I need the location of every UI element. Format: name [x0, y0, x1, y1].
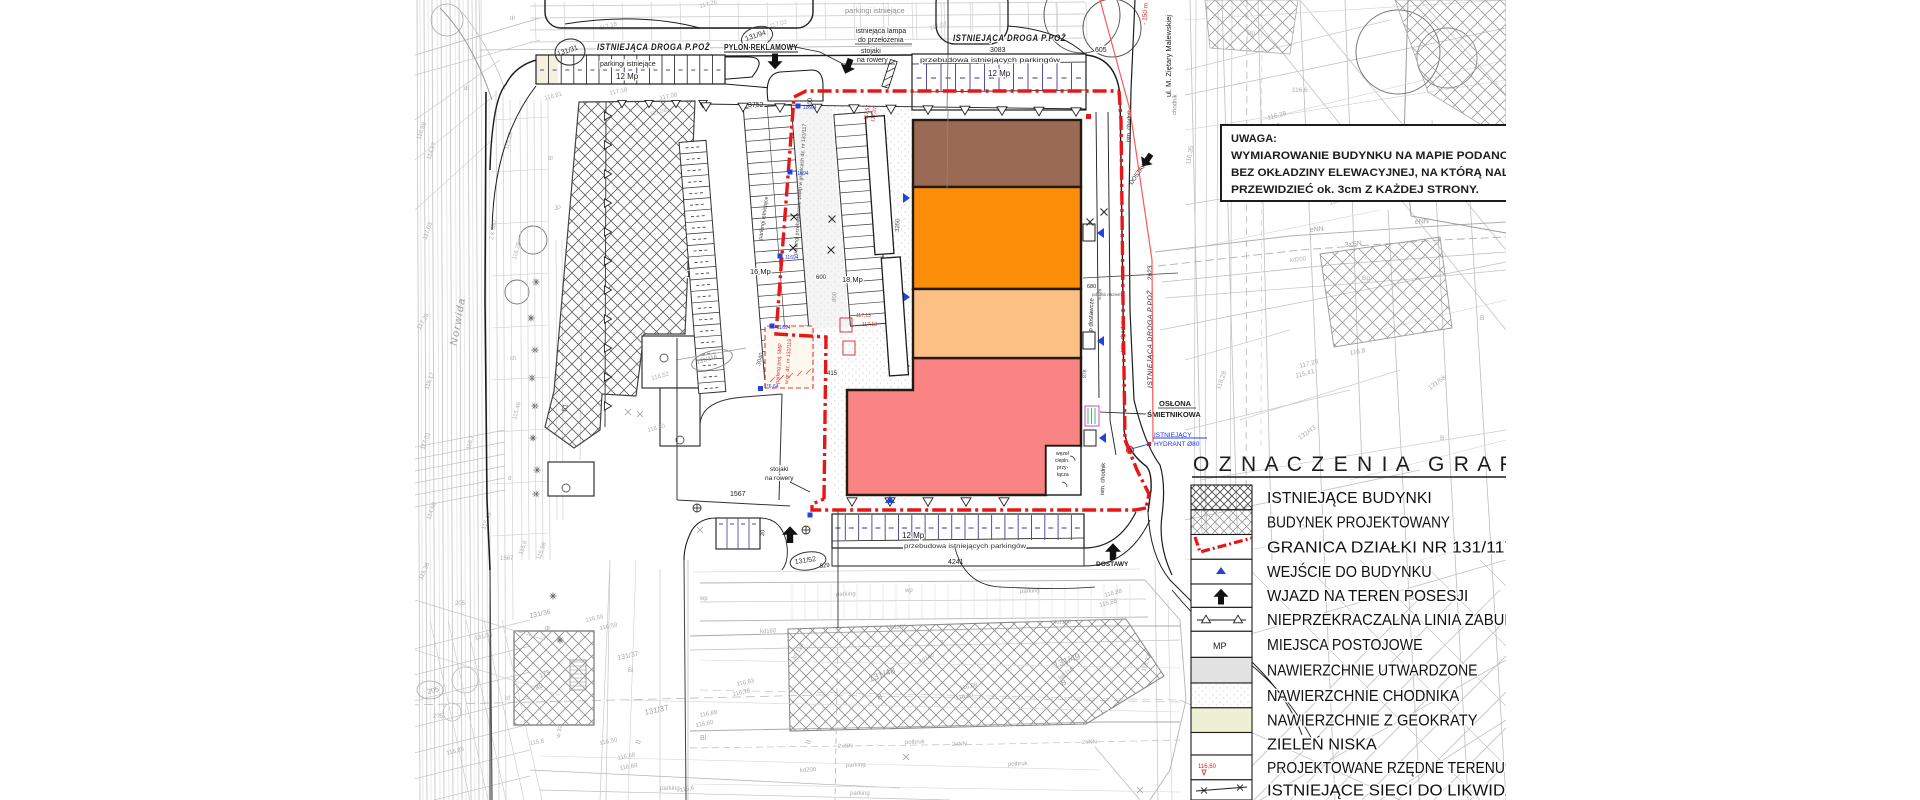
svg-text:NAWIERZCHNIE Z GEOKRATY: NAWIERZCHNIE Z GEOKRATY [1267, 713, 1478, 730]
svg-text:20: 20 [760, 530, 767, 537]
svg-text:PYLON REKLAMOWY: PYLON REKLAMOWY [724, 43, 798, 52]
svg-text:116,6: 116,6 [1292, 87, 1308, 94]
svg-text:parking: parking [660, 786, 680, 792]
svg-text:NAWIERZCHNIE CHODNIKA: NAWIERZCHNIE CHODNIKA [1267, 688, 1460, 705]
svg-text:5726: 5726 [1097, 289, 1103, 301]
svg-text:18 Mp: 18 Mp [842, 275, 863, 284]
svg-text:parkingi istniejące: parkingi istniejące [600, 61, 656, 68]
svg-text:415: 415 [827, 371, 838, 377]
svg-text:HYDRANT Ø80: HYDRANT Ø80 [1154, 441, 1200, 448]
svg-text:12 Mp: 12 Mp [988, 69, 1011, 78]
svg-text:kd160: kd160 [760, 628, 777, 635]
svg-text:bf: bf [505, 696, 510, 702]
svg-text:ZIELEŃ NISKA: ZIELEŃ NISKA [1267, 736, 1377, 753]
svg-text:800: 800 [832, 291, 838, 302]
svg-text:OSŁONA: OSŁONA [1159, 399, 1192, 408]
svg-text:wp: wp [699, 596, 708, 602]
svg-text:117,13: 117,13 [856, 313, 871, 319]
svg-text:parking: parking [850, 791, 870, 797]
svg-text:dr: dr [548, 156, 553, 162]
svg-text:116,60: 116,60 [1198, 764, 1217, 770]
svg-text:polbruk: polbruk [1008, 761, 1029, 768]
svg-text:ISTNIEJĄCE SIECI DO LIKWIDACJI: ISTNIEJĄCE SIECI DO LIKWIDACJI [1267, 782, 1542, 799]
svg-text:przebudowa istniejących parkin: przebudowa istniejących parkingów [904, 543, 1026, 550]
svg-text:3083: 3083 [990, 47, 1006, 54]
svg-text:B: B [1480, 315, 1484, 322]
svg-text:dr: dr [545, 626, 550, 632]
svg-text:2xNN: 2xNN [1082, 739, 1097, 746]
svg-text:MP: MP [1213, 641, 1227, 651]
svg-text:878: 878 [1082, 369, 1088, 378]
svg-text:parking: parking [836, 591, 856, 598]
svg-text:ŚMIETNIKOWA: ŚMIETNIKOWA [1147, 410, 1201, 419]
svg-text:na rowery: na rowery [765, 475, 794, 482]
svg-text:680: 680 [1087, 284, 1096, 290]
svg-text:WYMIAROWANIE BUDYNKU NA MAPIE: WYMIAROWANIE BUDYNKU NA MAPIE PODANO [1231, 150, 1509, 162]
svg-text:BUDYNEK PROJEKTOWANY: BUDYNEK PROJEKTOWANY [1267, 515, 1450, 532]
svg-text:eNN: eNN [1309, 226, 1324, 234]
svg-text:stojaki: stojaki [861, 48, 881, 55]
svg-text:łącza: łącza [1057, 472, 1069, 478]
svg-text:ISTNIEJĄCA DROGA P.POŻ: ISTNIEJĄCA DROGA P.POŻ [597, 42, 710, 52]
svg-text:dr: dr [510, 16, 515, 22]
svg-text:wp: wp [904, 588, 913, 594]
svg-text:1567: 1567 [500, 556, 514, 562]
svg-text:przebudowa istniejących parkin: przebudowa istniejących parkingów [920, 57, 1060, 64]
svg-text:600: 600 [816, 275, 827, 281]
svg-text:11694: 11694 [803, 105, 817, 111]
svg-text:PROJEKTOWANE RZĘDNE TERENU: PROJEKTOWANE RZĘDNE TERENU [1267, 760, 1505, 777]
svg-text:2xNN: 2xNN [952, 741, 967, 748]
svg-text:istniejąca lampa: istniejąca lampa [856, 28, 906, 35]
svg-text:117,13: 117,13 [862, 322, 877, 328]
svg-text:GRANICA DZIAŁKI NR 131/117: GRANICA DZIAŁKI NR 131/117 [1267, 539, 1514, 556]
svg-text:2?5: 2?5 [433, 714, 444, 720]
svg-text:chodnik: chodnik [1172, 93, 1179, 115]
svg-text:WJAZD NA TEREN POSESJI: WJAZD NA TEREN POSESJI [1267, 588, 1468, 605]
svg-text:3250: 3250 [895, 218, 901, 232]
svg-text:11694: 11694 [777, 325, 791, 331]
svg-text:605: 605 [1095, 47, 1107, 54]
svg-text:11694: 11694 [785, 255, 799, 261]
svg-text:BEZ OKŁADZINY ELEWACYJNEJ, NA: BEZ OKŁADZINY ELEWACYJNEJ, NA KTÓRĄ NAL [1231, 166, 1509, 179]
svg-text:11694: 11694 [795, 171, 809, 177]
svg-text:ch: ch [510, 356, 516, 362]
svg-text:205: 205 [455, 601, 466, 607]
svg-text:ISTNIEJĄCE BUDYNKI: ISTNIEJĄCE BUDYNKI [1267, 490, 1432, 507]
svg-text:MIEJSCA POSTOJOWE: MIEJSCA POSTOJOWE [1267, 637, 1423, 654]
svg-text:2xNN: 2xNN [838, 743, 853, 750]
svg-text:PRZEWIDZIEĆ ok. 3cm Z KAŻDEJ S: PRZEWIDZIEĆ ok. 3cm Z KAŻDEJ STRONY. [1231, 183, 1479, 196]
svg-text:12 Mp: 12 Mp [616, 72, 639, 81]
svg-text:ul. M. Ziętary Malewskiej: ul. M. Ziętary Malewskiej [1164, 15, 1173, 97]
svg-text:polbruk: polbruk [905, 739, 926, 746]
svg-text:O Z N A C Z E N I A: O Z N A C Z E N I A [1193, 453, 1412, 476]
svg-text:JP: JP [554, 206, 561, 212]
svg-text:NAWIERZCHNIE UTWARDZONE: NAWIERZCHNIE UTWARDZONE [1267, 663, 1478, 680]
svg-text:ISTNIEJĄCY: ISTNIEJĄCY [1154, 432, 1192, 439]
svg-text:WEJŚCIE DO BUDYNKU: WEJŚCIE DO BUDYNKU [1267, 563, 1432, 581]
svg-text:2623: 2623 [1147, 265, 1154, 280]
svg-text:1567: 1567 [730, 491, 746, 498]
svg-text:16 Mp: 16 Mp [750, 267, 771, 276]
svg-text:Bl: Bl [700, 735, 707, 742]
svg-text:UWAGA:: UWAGA: [1231, 133, 1277, 145]
svg-text:kd200: kd200 [800, 767, 817, 774]
svg-text:4241: 4241 [948, 559, 964, 566]
svg-text:ISTNIEJĄCA DROGA P.POŻ: ISTNIEJĄCA DROGA P.POŻ [953, 33, 1066, 43]
svg-text:parking: parking [1020, 588, 1040, 595]
svg-text:12 Mp: 12 Mp [902, 531, 925, 540]
svg-text:5: 5 [940, 640, 944, 647]
svg-text:istn. chodnik: istn. chodnik [1100, 463, 1107, 496]
svg-text:dr: dr [464, 86, 469, 92]
svg-text:B: B [1440, 435, 1444, 442]
svg-text:do przełożenia: do przełożenia [858, 37, 904, 44]
svg-text:1*6,64: 1*6,64 [764, 384, 779, 390]
svg-text:ciepln.: ciepln. [1055, 458, 1069, 464]
svg-text:parking: parking [846, 762, 866, 769]
svg-text:parkingi istniejące: parkingi istniejące [845, 6, 905, 15]
svg-text:na rowery: na rowery [857, 57, 888, 64]
svg-text:węzeł: węzeł [1056, 451, 1070, 457]
svg-text:d: d [508, 476, 511, 482]
svg-text:3752: 3752 [748, 102, 764, 109]
svg-text:stojaki: stojaki [770, 466, 788, 473]
svg-text:przy-: przy- [1057, 465, 1068, 471]
